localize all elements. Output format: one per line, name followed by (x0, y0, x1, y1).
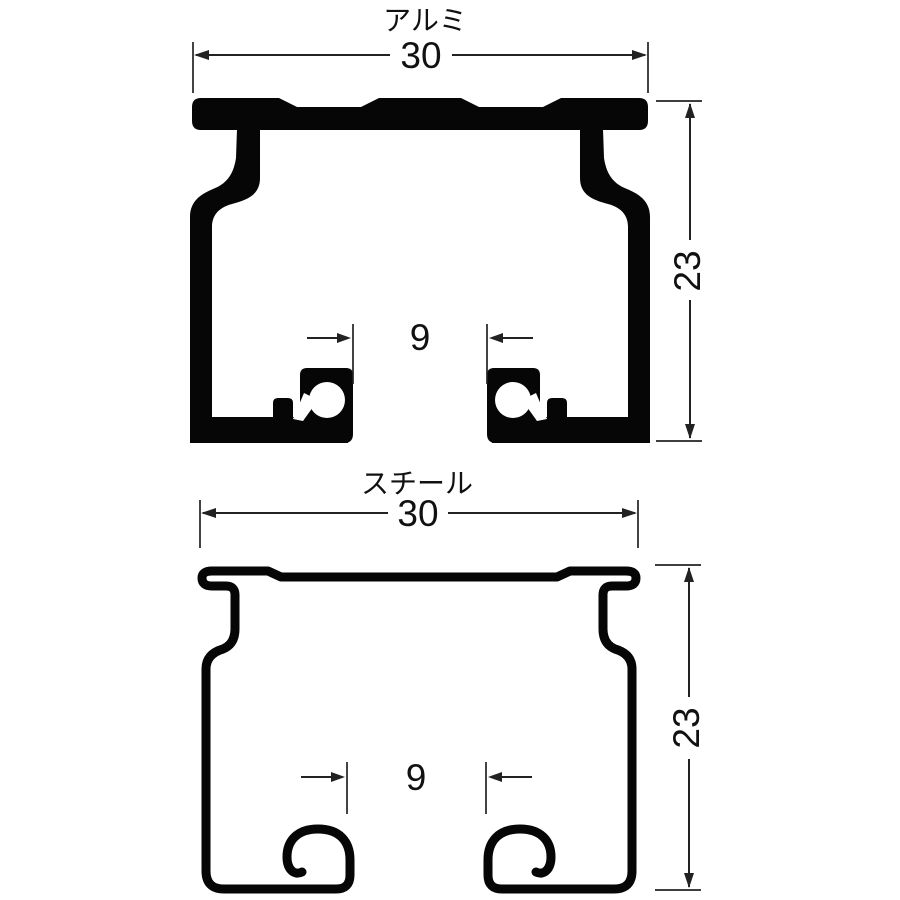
arrowhead (488, 772, 502, 782)
steel-slot-dimension: 9 (301, 757, 532, 814)
aluminum-right-nub (547, 398, 567, 420)
aluminum-section: アルミ 30 (190, 5, 708, 443)
aluminum-section-label: アルミ (383, 5, 467, 36)
arrowhead (201, 508, 216, 518)
aluminum-left-nub (273, 398, 293, 420)
steel-width-value: 30 (397, 493, 438, 534)
aluminum-width-dimension: 30 (193, 35, 648, 93)
steel-height-dimension: 23 (655, 565, 707, 890)
steel-height-value: 23 (666, 707, 707, 748)
arrowhead (331, 772, 345, 782)
arrowhead (684, 873, 694, 888)
arrowhead (632, 50, 647, 60)
diagram-canvas: アルミ 30 (0, 0, 900, 900)
arrowhead (337, 333, 351, 343)
steel-width-dimension: 30 (200, 493, 638, 548)
arrowhead (684, 567, 694, 582)
aluminum-height-dimension: 23 (656, 101, 708, 441)
steel-left-half (202, 571, 419, 889)
aluminum-top-cap (192, 98, 648, 130)
steel-section: スチール 30 23 (200, 468, 707, 890)
arrowhead (622, 508, 637, 518)
steel-right-half (419, 571, 636, 889)
arrowhead (685, 103, 695, 118)
steel-rail-profile (202, 571, 636, 889)
aluminum-slot-value: 9 (410, 317, 431, 358)
arrowhead (685, 424, 695, 439)
steel-slot-value: 9 (406, 757, 427, 798)
aluminum-right-wall (580, 129, 650, 443)
aluminum-left-wall (190, 129, 260, 443)
arrowhead (194, 50, 209, 60)
aluminum-rail-profile (190, 98, 650, 443)
arrowhead (489, 333, 503, 343)
aluminum-width-value: 30 (400, 35, 441, 76)
curtain-rail-cross-section-diagram: アルミ 30 (0, 0, 900, 900)
aluminum-height-value: 23 (667, 250, 708, 291)
